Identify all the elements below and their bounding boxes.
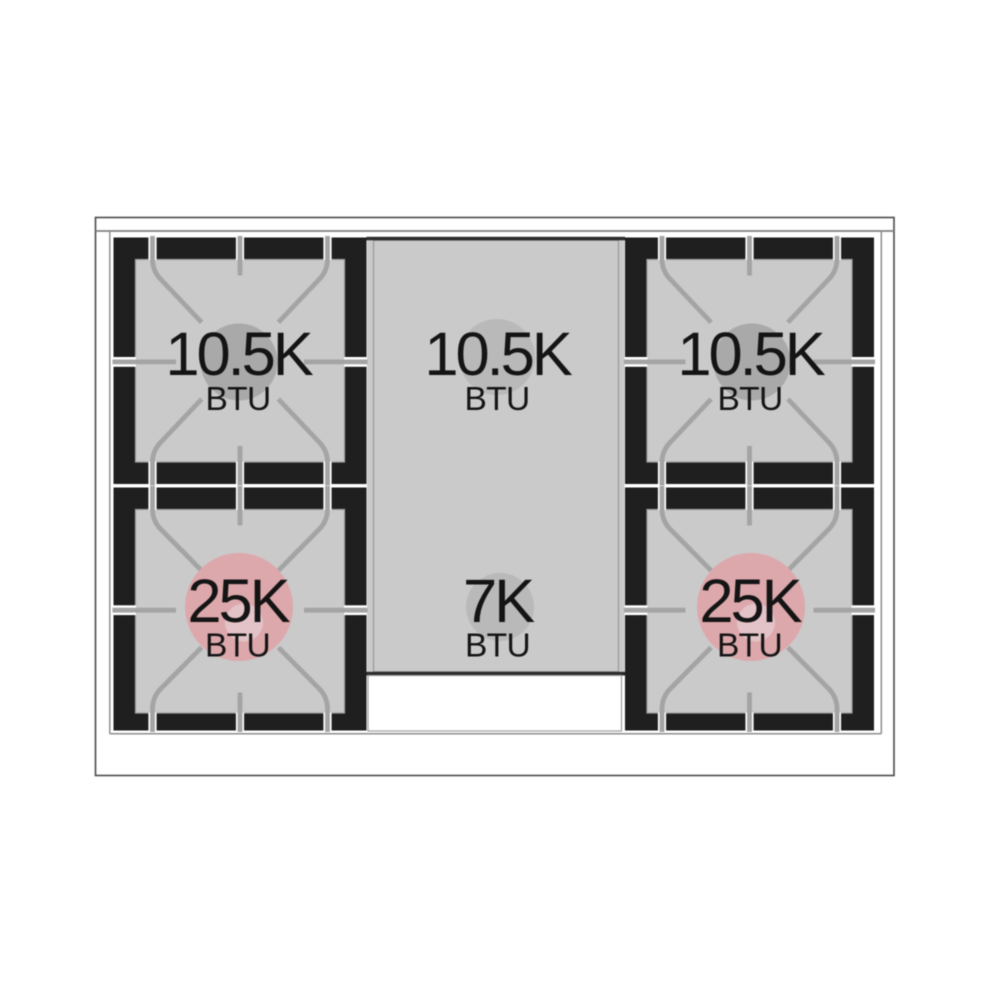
svg-text:BTU: BTU [205, 628, 270, 665]
svg-text:10.5K: 10.5K [165, 320, 313, 389]
svg-text:BTU: BTU [206, 381, 271, 418]
svg-text:10.5K: 10.5K [424, 320, 572, 389]
svg-text:25K: 25K [187, 567, 290, 636]
svg-text:7K: 7K [463, 567, 535, 636]
svg-text:BTU: BTU [717, 628, 782, 665]
svg-text:BTU: BTU [465, 628, 530, 665]
svg-text:25K: 25K [699, 567, 802, 636]
svg-text:10.5K: 10.5K [677, 320, 825, 389]
svg-text:BTU: BTU [718, 381, 783, 418]
svg-text:BTU: BTU [465, 381, 530, 418]
